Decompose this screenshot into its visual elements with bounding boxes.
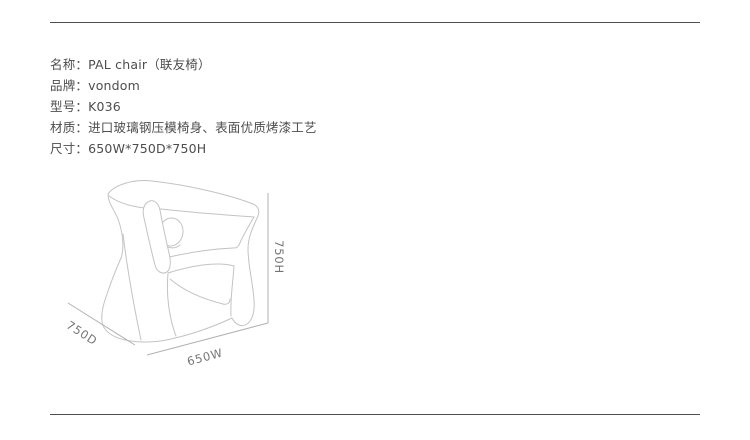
dimension-label-height: 750H [272,240,286,274]
spec-colon: ： [75,141,88,156]
product-spec-list: 名称：PAL chair（联友椅） 品牌：vondom 型号：K036 材质：进… [50,54,317,159]
dimension-label-width: 650W [186,346,225,369]
spec-label: 材质 [50,120,75,135]
top-divider-line [50,22,700,23]
spec-value: K036 [88,99,121,114]
spec-label: 尺寸 [50,141,75,156]
dimension-label-depth: 750D [64,318,100,348]
spec-value: 650W*750D*750H [88,141,206,156]
spec-row-model: 型号：K036 [50,96,317,117]
spec-row-material: 材质：进口玻璃钢压模椅身、表面优质烤漆工艺 [50,117,317,138]
spec-value: PAL chair（联友椅） [88,57,211,72]
spec-colon: ： [75,78,88,93]
spec-row-brand: 品牌：vondom [50,75,317,96]
spec-label: 品牌 [50,78,75,93]
spec-label: 型号 [50,99,75,114]
chair-line-drawing: 750H 750D 650W [55,172,305,377]
spec-row-name: 名称：PAL chair（联友椅） [50,54,317,75]
spec-colon: ： [75,120,88,135]
chair-body-outline [102,181,259,342]
chair-dimension-diagram: 750H 750D 650W [55,172,305,377]
spec-label: 名称 [50,57,75,72]
spec-colon: ： [75,99,88,114]
spec-row-size: 尺寸：650W*750D*750H [50,138,317,159]
product-spec-page: 名称：PAL chair（联友椅） 品牌：vondom 型号：K036 材质：进… [0,0,750,440]
spec-value: 进口玻璃钢压模椅身、表面优质烤漆工艺 [88,120,317,135]
bottom-divider-line [50,414,700,415]
spec-value: vondom [88,78,140,93]
spec-colon: ： [75,57,88,72]
